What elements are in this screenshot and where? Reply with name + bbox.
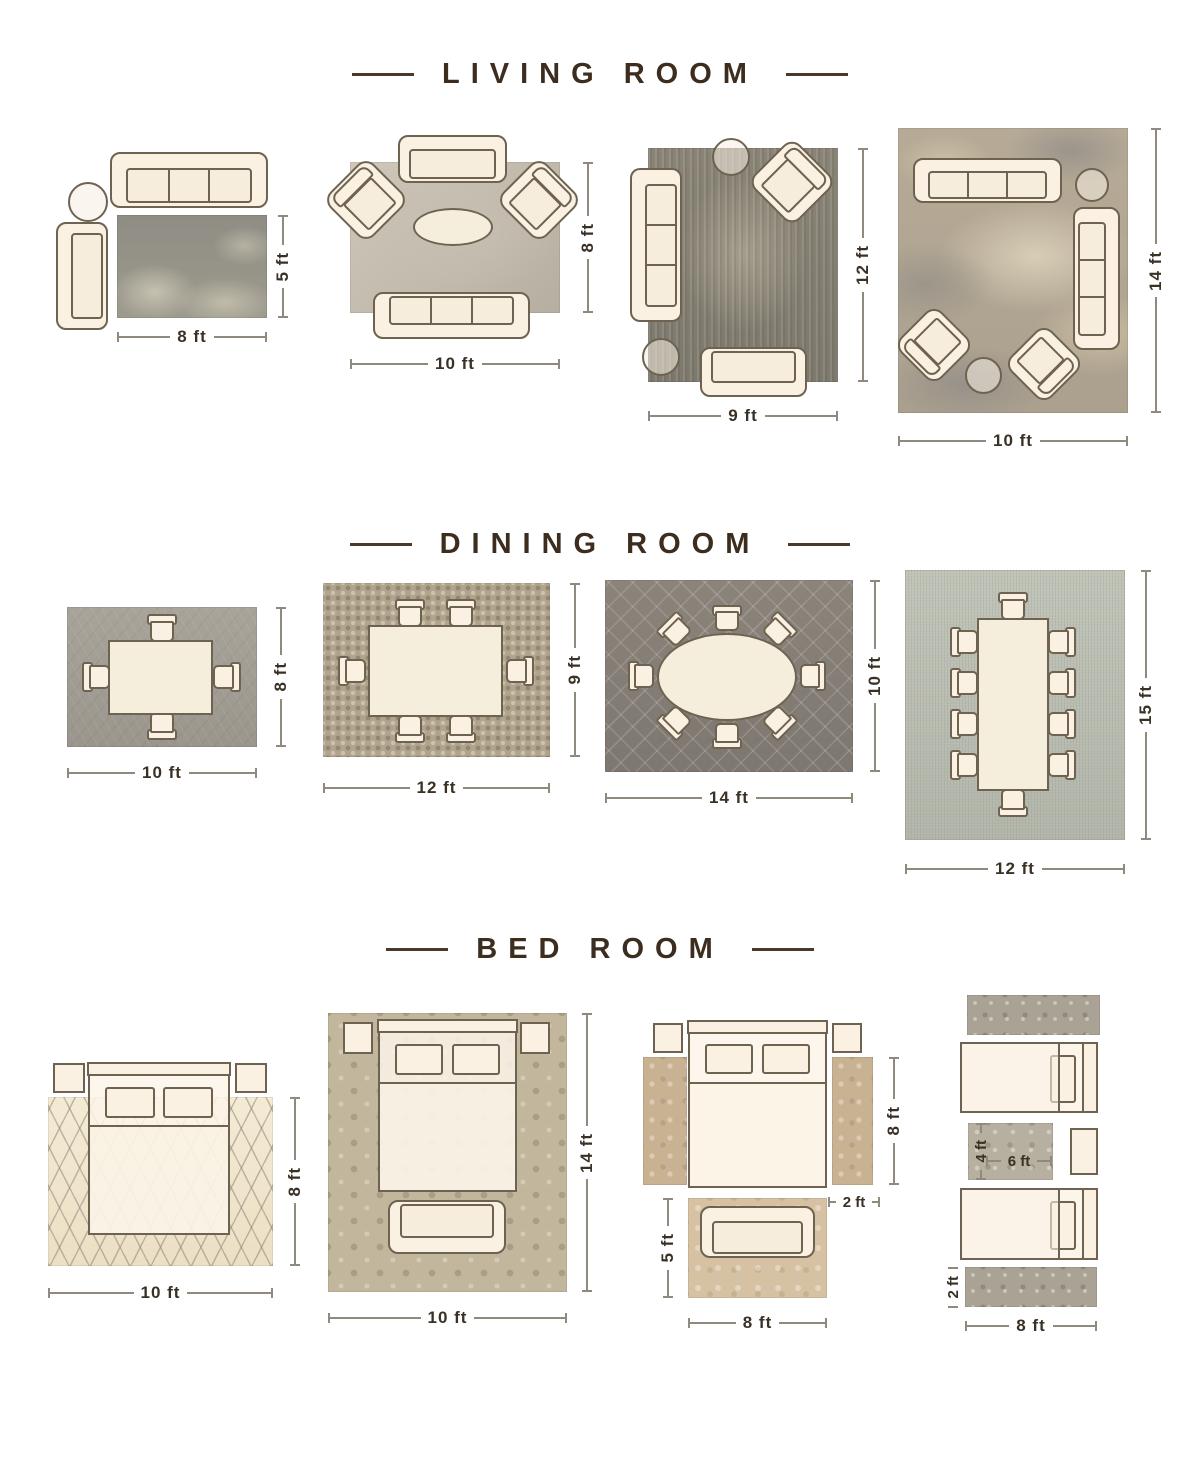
dimension-height: 14 ft	[1145, 128, 1167, 413]
height-label: 14 ft	[577, 1126, 597, 1180]
title-dash-left	[386, 948, 448, 951]
dimension-width: 12 ft	[323, 777, 550, 799]
nightstand	[235, 1063, 267, 1093]
bed	[378, 1020, 517, 1192]
dining-chair	[395, 599, 425, 627]
twin-bed	[960, 1042, 1098, 1113]
pillow	[762, 1044, 811, 1074]
runner-width-label: 8 ft	[1009, 1316, 1053, 1336]
section-title-dining-room: DINING ROOM	[0, 528, 1200, 561]
dimension-height: 15 ft	[1135, 570, 1157, 840]
dining-chair	[950, 709, 978, 739]
dimension-foot-rug-height: 5 ft	[657, 1198, 679, 1298]
rug-size-guide: LIVING ROOM 8 ft 5 ft 10 ft	[0, 0, 1200, 1467]
dining-chair	[950, 668, 978, 698]
bed-room-layout-3: 8 ft 2 ft 5 ft 8 ft	[635, 1015, 913, 1333]
sofa	[1073, 207, 1120, 350]
oval-dining-table	[657, 633, 797, 721]
dining-chair	[446, 715, 476, 743]
dining-chair	[147, 712, 177, 740]
dining-chair	[950, 750, 978, 780]
dining-table	[368, 625, 503, 717]
dining-chair	[1048, 668, 1076, 698]
dining-room-layout-4: 12 ft 15 ft	[905, 568, 1157, 870]
nightstand	[343, 1022, 373, 1054]
height-label: 9 ft	[565, 648, 585, 692]
width-label: 14 ft	[702, 788, 756, 808]
loveseat	[700, 347, 807, 397]
width-label: 9 ft	[721, 406, 765, 426]
round-side-table	[68, 182, 108, 222]
dining-table	[108, 640, 213, 715]
dimension-width: 12 ft	[905, 858, 1125, 880]
runner-height-label: 8 ft	[884, 1099, 904, 1143]
sofa	[373, 292, 530, 339]
dimension-height: 9 ft	[564, 583, 586, 757]
oval-coffee-table	[413, 208, 493, 246]
runner-rug	[967, 995, 1100, 1035]
nightstand	[520, 1022, 550, 1054]
dining-room-layout-2: 12 ft 9 ft	[322, 580, 584, 802]
pillow	[105, 1087, 155, 1118]
dining-chair	[800, 661, 826, 691]
bed-room-layout-4: 4 ft 6 ft 2 ft 8 ft	[940, 990, 1180, 1338]
pillow	[705, 1044, 754, 1074]
dining-room-layout-1: 10 ft 8 ft	[60, 600, 302, 792]
dining-chair	[998, 789, 1028, 817]
width-label: 12 ft	[988, 859, 1042, 879]
dining-chair	[338, 656, 366, 686]
living-room-layout-3: 9 ft 12 ft	[625, 135, 877, 433]
dining-chair	[506, 656, 534, 686]
foot-bench	[388, 1200, 506, 1254]
height-label: 12 ft	[853, 238, 873, 292]
dimension-runner-width: 2 ft	[828, 1191, 880, 1213]
nightstand	[653, 1023, 683, 1053]
dining-chair	[147, 614, 177, 642]
bed-room-layout-1: 10 ft 8 ft	[42, 1050, 310, 1312]
foot-rug-height-label: 5 ft	[658, 1226, 678, 1270]
pillow	[452, 1044, 501, 1075]
title-dash-right	[788, 543, 850, 546]
dimension-width: 10 ft	[898, 430, 1128, 452]
dimension-height: 14 ft	[576, 1013, 598, 1292]
section-title-living-room: LIVING ROOM	[0, 58, 1200, 91]
dining-chair	[1048, 750, 1076, 780]
height-label: 8 ft	[271, 655, 291, 699]
round-table	[712, 138, 750, 176]
dimension-width: 10 ft	[67, 762, 257, 784]
width-label: 12 ft	[410, 778, 464, 798]
sofa	[110, 152, 268, 208]
dimension-height: 8 ft	[270, 607, 292, 747]
dining-chair	[213, 662, 241, 692]
sofa	[913, 158, 1062, 203]
nightstand	[1070, 1128, 1098, 1175]
dining-chair	[998, 592, 1028, 620]
title-dash-left	[352, 73, 414, 76]
living-room-layout-1: 8 ft 5 ft	[48, 140, 298, 355]
bed	[688, 1021, 827, 1188]
twin-bed	[960, 1188, 1098, 1260]
dimension-width: 10 ft	[350, 353, 560, 375]
dimension-runner-height: 2 ft	[942, 1267, 964, 1307]
dimension-width: 8 ft	[117, 326, 267, 348]
dimension-height: 5 ft	[272, 215, 294, 318]
height-label: 10 ft	[865, 649, 885, 703]
section-title-text: LIVING ROOM	[442, 58, 758, 91]
title-dash-right	[786, 73, 848, 76]
foot-rug-width-label: 8 ft	[736, 1313, 780, 1333]
dimension-height: 12 ft	[852, 148, 874, 382]
title-dash-left	[350, 543, 412, 546]
dining-chair	[712, 605, 742, 631]
height-label: 14 ft	[1146, 244, 1166, 298]
dining-table	[977, 618, 1049, 791]
living-room-layout-2: 10 ft 8 ft	[335, 125, 607, 377]
width-label: 10 ft	[134, 1283, 188, 1303]
height-label: 8 ft	[578, 216, 598, 260]
rug-8x5	[117, 215, 267, 318]
loveseat	[398, 135, 507, 183]
pillow	[1050, 1201, 1075, 1250]
dining-chair	[395, 715, 425, 743]
dimension-width: 10 ft	[48, 1282, 273, 1304]
dining-chair	[1048, 627, 1076, 657]
dining-chair	[628, 661, 654, 691]
dimension-width: 10 ft	[328, 1307, 567, 1329]
dimension-accent-rug-width: 6 ft	[986, 1150, 1052, 1172]
foot-sofa	[700, 1206, 815, 1258]
height-label: 5 ft	[273, 245, 293, 289]
section-title-text: BED ROOM	[476, 933, 724, 966]
dimension-width: 14 ft	[605, 787, 853, 809]
height-label: 15 ft	[1136, 678, 1156, 732]
width-label: 10 ft	[986, 431, 1040, 451]
runner-rug	[965, 1267, 1097, 1307]
width-label: 8 ft	[170, 327, 214, 347]
side-runner-rug	[643, 1057, 687, 1185]
living-room-layout-4: 10 ft 14 ft	[895, 118, 1187, 450]
width-label: 10 ft	[135, 763, 189, 783]
dimension-runner-width: 8 ft	[965, 1315, 1097, 1337]
dining-chair	[1048, 709, 1076, 739]
section-title-bed-room: BED ROOM	[0, 933, 1200, 966]
pillow	[395, 1044, 444, 1075]
dining-chair	[446, 599, 476, 627]
width-label: 10 ft	[428, 354, 482, 374]
pillow	[163, 1087, 213, 1118]
chaise-sofa	[56, 222, 108, 330]
runner-height-label: 2 ft	[945, 1269, 962, 1306]
sofa	[630, 168, 682, 322]
height-label: 8 ft	[285, 1160, 305, 1204]
dining-chair	[712, 723, 742, 749]
dining-chair	[950, 627, 978, 657]
dining-chair	[82, 662, 110, 692]
round-ottoman	[965, 357, 1002, 394]
nightstand	[832, 1023, 862, 1053]
dimension-width: 9 ft	[648, 405, 838, 427]
bed-room-layout-2: 10 ft 14 ft	[328, 1010, 596, 1328]
pillow	[1050, 1055, 1075, 1103]
nightstand	[53, 1063, 85, 1093]
dimension-runner-height: 8 ft	[883, 1057, 905, 1185]
section-title-text: DINING ROOM	[440, 528, 761, 561]
side-runner-rug	[832, 1057, 873, 1185]
accent-rug-width-label: 6 ft	[1001, 1153, 1038, 1170]
round-ottoman	[642, 338, 680, 376]
round-side-table	[1075, 168, 1109, 202]
dimension-height: 10 ft	[864, 580, 886, 772]
title-dash-right	[752, 948, 814, 951]
bed	[88, 1063, 230, 1235]
dimension-height: 8 ft	[577, 162, 599, 313]
dining-room-layout-3: 14 ft 10 ft	[600, 575, 876, 807]
runner-width-label: 2 ft	[836, 1194, 873, 1211]
width-label: 10 ft	[421, 1308, 475, 1328]
dimension-height: 8 ft	[284, 1097, 306, 1266]
dimension-foot-rug-width: 8 ft	[688, 1312, 827, 1334]
